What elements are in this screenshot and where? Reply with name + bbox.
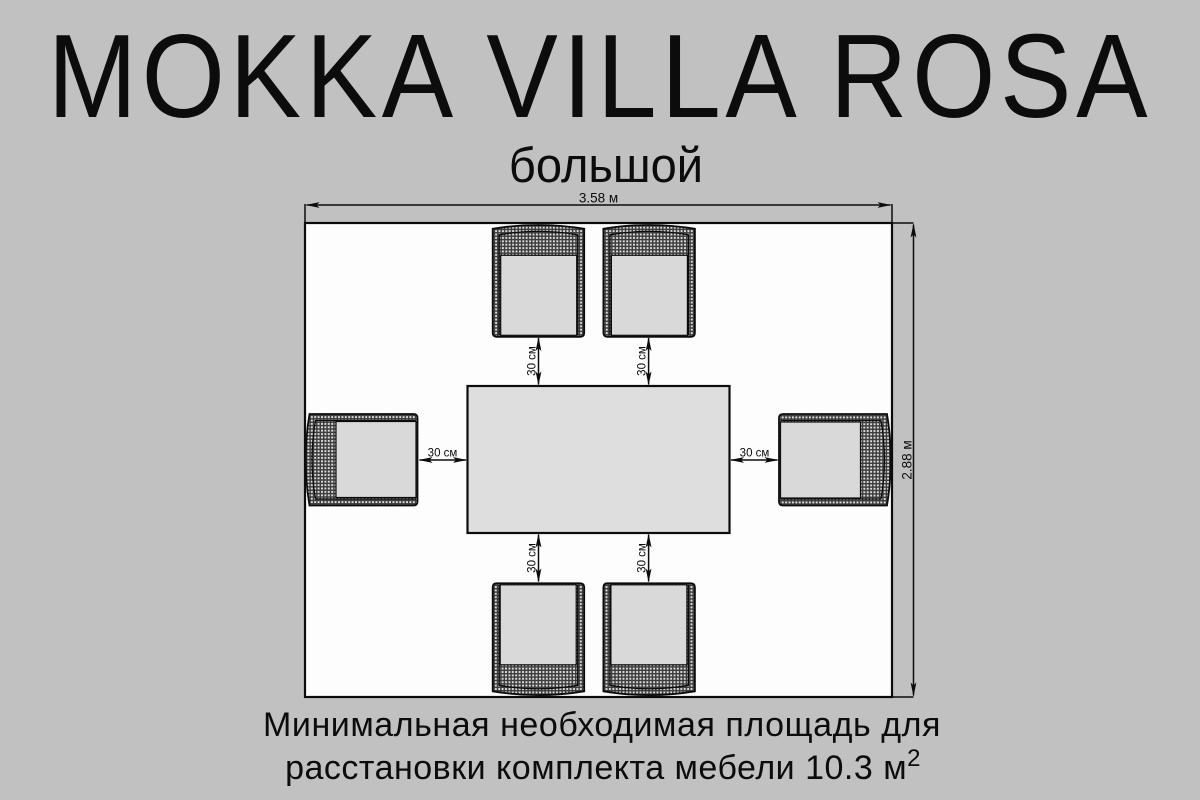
svg-text:30 см: 30 см <box>740 448 770 460</box>
svg-text:30 см: 30 см <box>428 448 458 460</box>
svg-text:расстановки комплекта мебели 1: расстановки комплекта мебели 10.3 м2 <box>285 745 921 787</box>
svg-text:30 см: 30 см <box>527 346 539 376</box>
svg-text:MOKKA VILLA ROSA: MOKKA VILLA ROSA <box>48 10 1153 142</box>
svg-text:30 см: 30 см <box>637 543 649 573</box>
svg-text:2.88 м: 2.88 м <box>899 440 914 479</box>
svg-text:30 см: 30 см <box>637 346 649 376</box>
svg-text:большой: большой <box>509 139 703 193</box>
svg-text:30 см: 30 см <box>527 543 539 573</box>
svg-text:Минимальная необходимая площад: Минимальная необходимая площадь для <box>263 706 941 744</box>
